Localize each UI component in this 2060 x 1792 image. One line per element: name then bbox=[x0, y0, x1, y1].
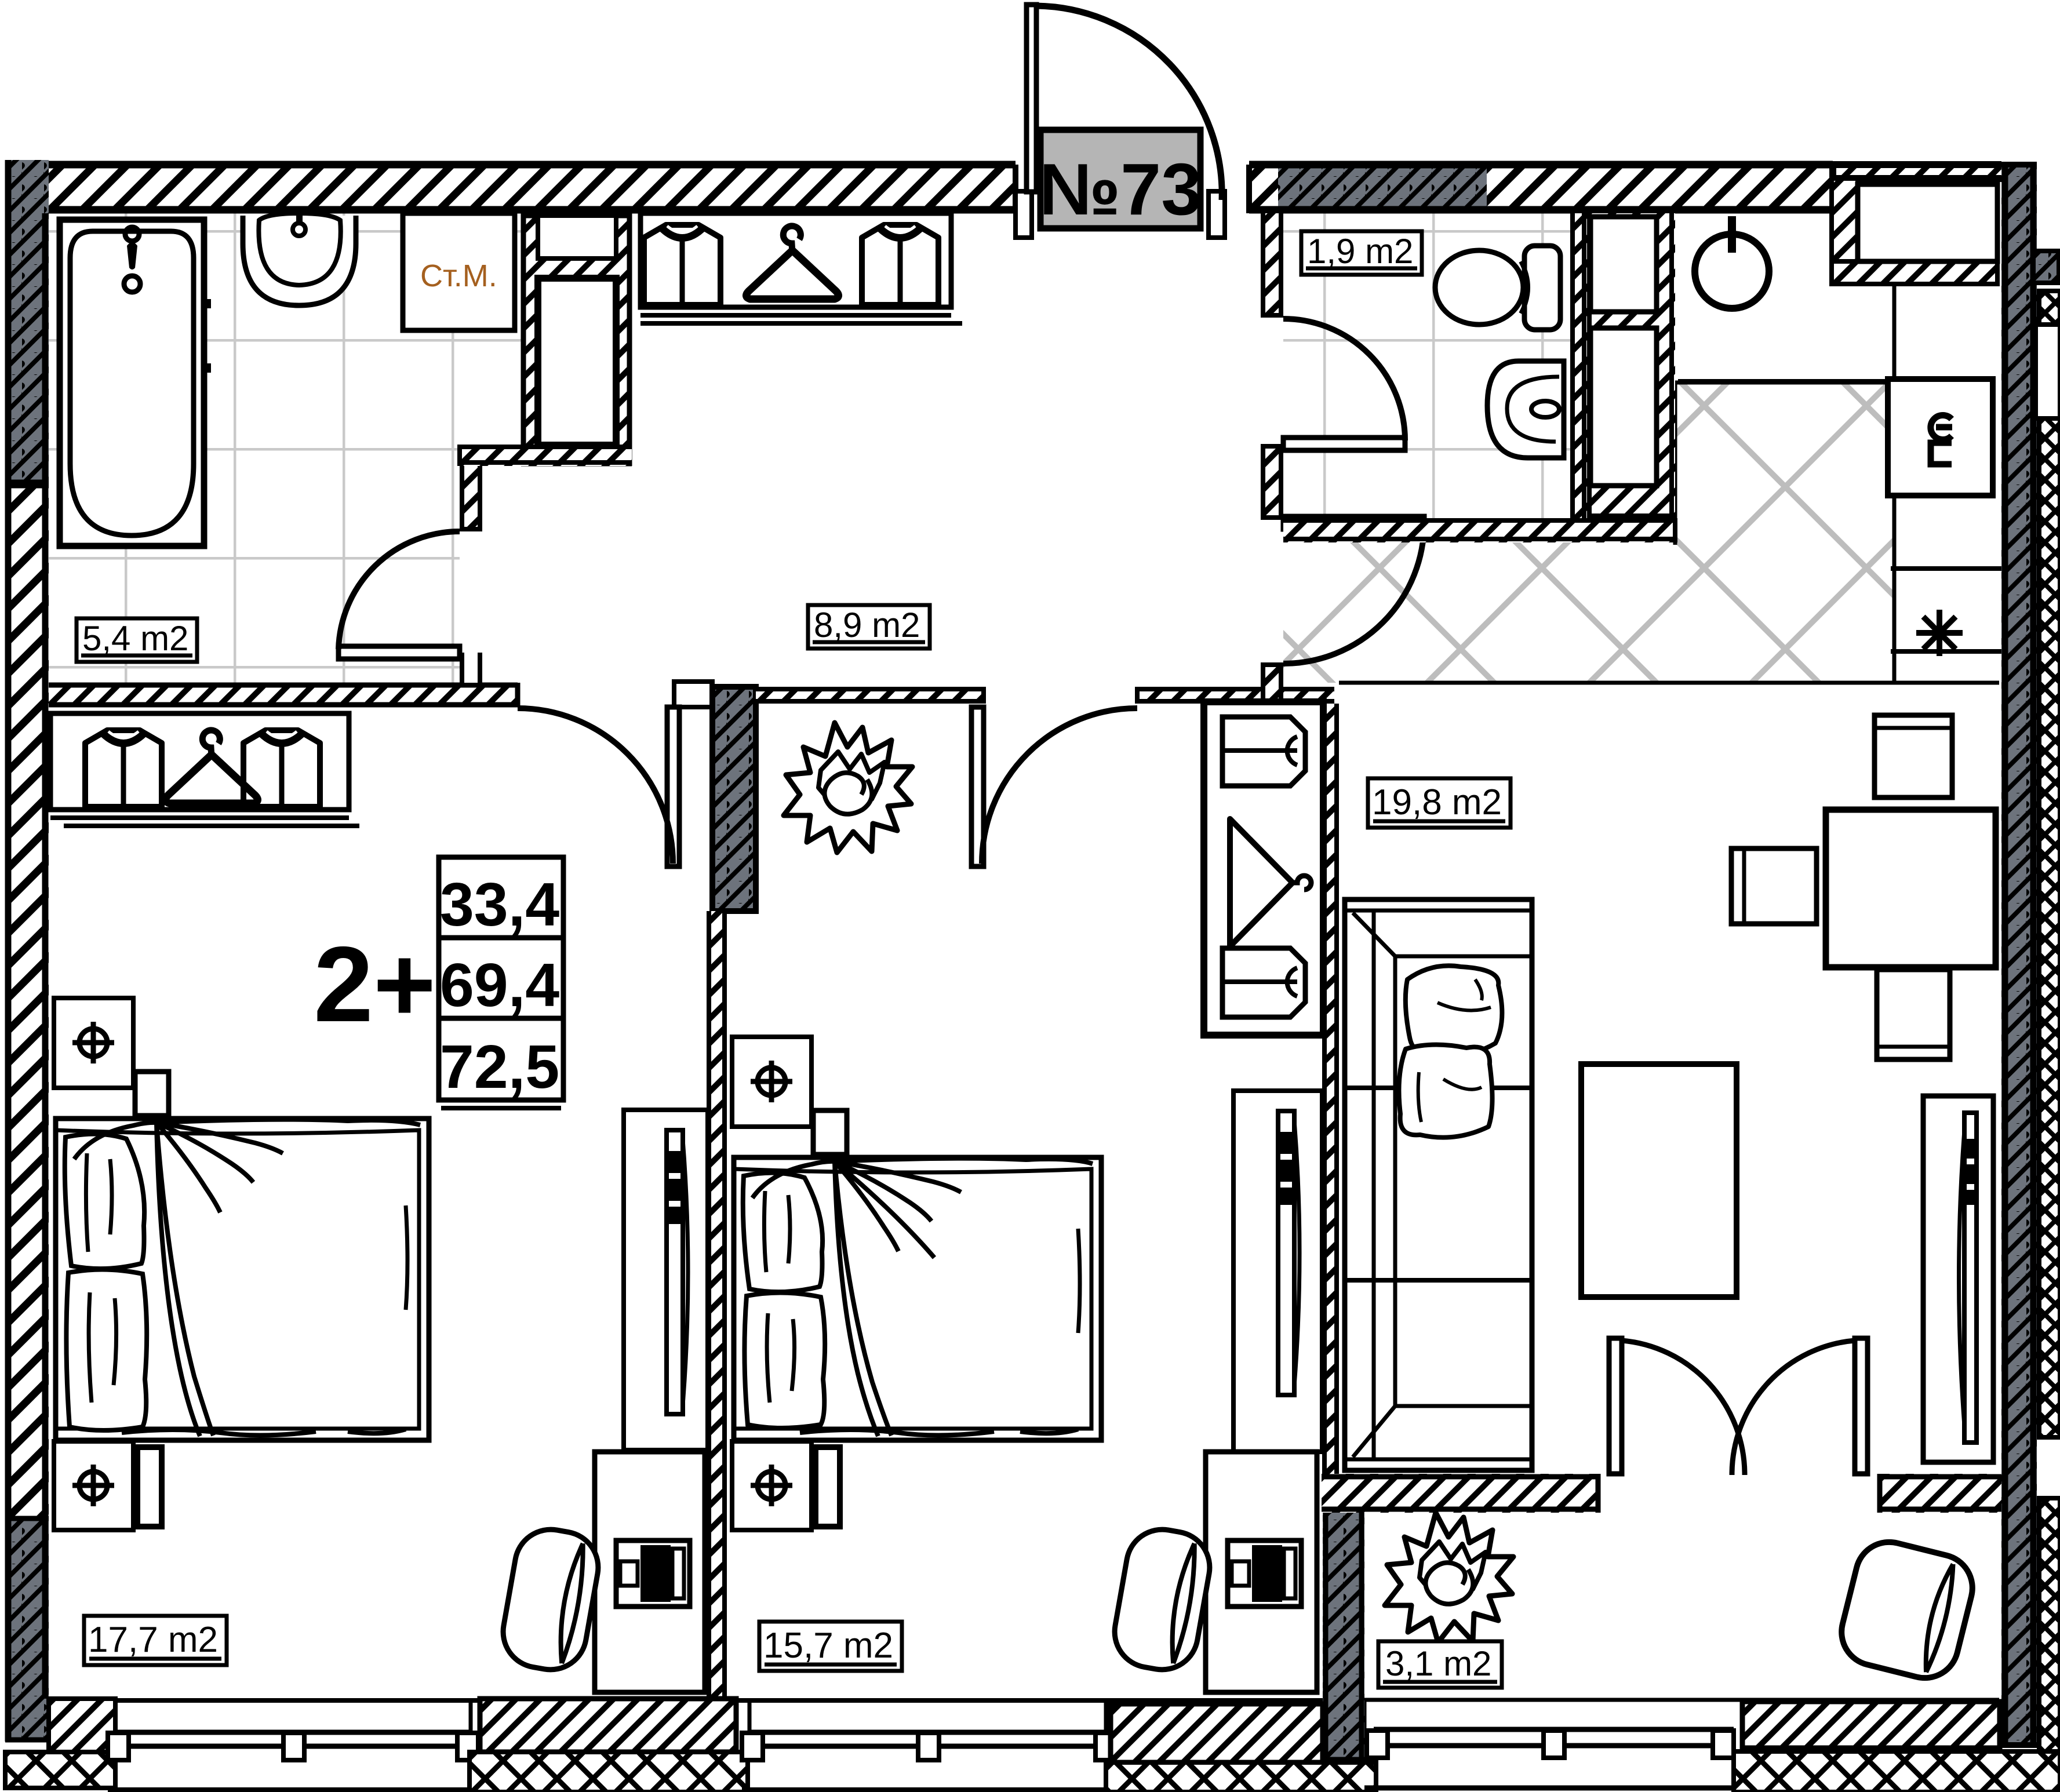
svg-text:72,5: 72,5 bbox=[440, 1033, 559, 1101]
svg-text:69,4: 69,4 bbox=[440, 951, 559, 1019]
svg-text:8,9 m2: 8,9 m2 bbox=[814, 606, 920, 644]
svg-text:5,4 m2: 5,4 m2 bbox=[82, 619, 188, 658]
svg-text:3,1 m2: 3,1 m2 bbox=[1385, 1644, 1491, 1683]
svg-text:2+: 2+ bbox=[314, 925, 436, 1044]
svg-text:1,9 m2: 1,9 m2 bbox=[1307, 232, 1413, 271]
svg-text:33,4: 33,4 bbox=[440, 870, 559, 939]
svg-text:Ст.М.: Ст.М. bbox=[420, 258, 497, 293]
svg-text:№73: №73 bbox=[1039, 148, 1202, 230]
svg-text:15,7 m2: 15,7 m2 bbox=[763, 1626, 893, 1666]
svg-text:17,7 m2: 17,7 m2 bbox=[88, 1620, 218, 1660]
svg-text:19,8 m2: 19,8 m2 bbox=[1372, 782, 1502, 822]
